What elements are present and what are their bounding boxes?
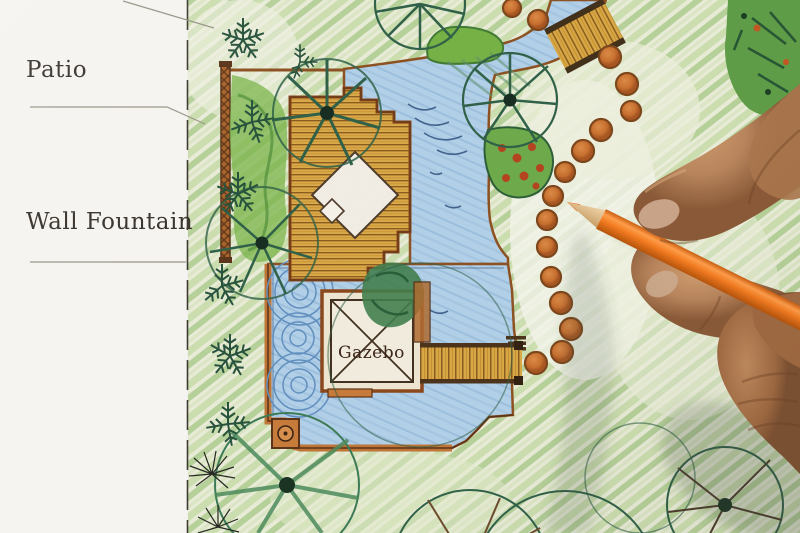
photo-landscape-plan: Patio Wall Fountain Gazebo [0,0,800,533]
label-wall-fountain: Wall Fountain [26,209,193,235]
label-gazebo: Gazebo [338,343,405,363]
label-patio: Patio [26,57,87,83]
plan-drawing [0,0,800,533]
